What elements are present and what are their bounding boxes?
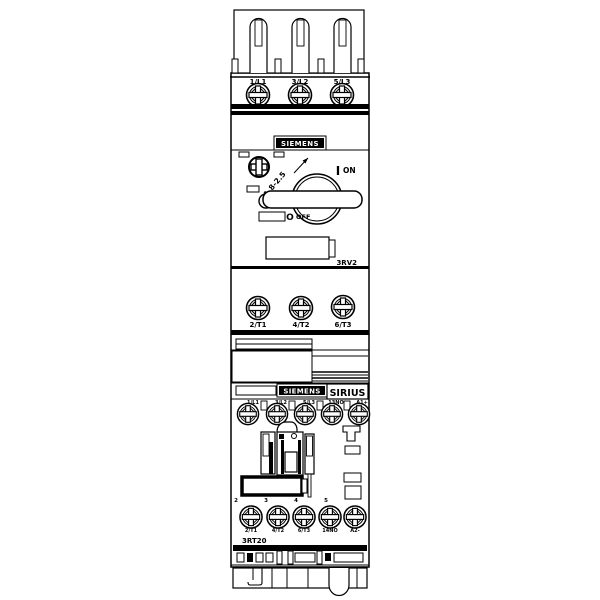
screw-terminal-icon: [348, 403, 369, 424]
screw-terminal-icon: [247, 84, 270, 107]
terminal-label: 4/T2: [272, 528, 285, 534]
breaker-line-terminals: 1/L1 3/L2 5/L3: [247, 78, 354, 107]
screw-terminal-icon: [331, 84, 354, 107]
on-label: ON: [343, 166, 356, 175]
off-label: OFF: [296, 213, 310, 221]
screw-terminal-icon: [266, 403, 287, 424]
separator-bar: [231, 104, 369, 109]
brand-text: SIEMENS: [283, 388, 320, 396]
adjustment-screw-icon: [249, 157, 269, 177]
series-text: SIRIUS: [330, 388, 366, 399]
screw-terminal-icon: [332, 296, 355, 319]
separator-bar: [233, 545, 367, 551]
separator-bar: [231, 266, 369, 269]
screw-terminal-icon: [293, 506, 315, 528]
screw-terminal-icon: [319, 506, 341, 528]
breaker-model-label: 3RV2: [336, 259, 357, 267]
terminal-label: 4/T2: [292, 321, 309, 329]
screw-terminal-icon: [290, 297, 313, 320]
terminal-label: 2/T1: [245, 528, 258, 534]
pole-number: 3: [264, 498, 268, 504]
screw-terminal-icon: [344, 506, 366, 528]
pole-number: 2: [234, 498, 238, 504]
brand-text: SIEMENS: [281, 140, 319, 148]
screw-terminal-icon: [294, 403, 315, 424]
terminal-label: A2-: [350, 528, 359, 534]
contactor-model-label: 3RT20: [242, 537, 267, 545]
screw-terminal-icon: [247, 297, 270, 320]
terminal-label: 6/T3: [298, 528, 311, 534]
terminal-label: 14NO: [322, 528, 337, 534]
pole-number: 4: [294, 498, 298, 504]
label-window: [242, 477, 302, 495]
busbar-prong-block: [230, 10, 370, 77]
breaker-brand-plate: SIEMENS: [274, 136, 326, 150]
motor-starter-diagram: 1/L1 3/L2 5/L3 SIEMENS: [0, 0, 600, 600]
separator-bar: [231, 111, 369, 115]
separator-bar: [231, 330, 369, 335]
technical-drawing-page: 1/L1 3/L2 5/L3 SIEMENS: [0, 0, 600, 600]
marking-field: [266, 237, 329, 259]
off-symbol: O: [286, 213, 294, 223]
on-symbol: I: [336, 164, 340, 178]
clamp-row: [237, 551, 363, 564]
breaker-load-terminals: 2/T1 4/T2 6/T3: [247, 296, 355, 330]
screw-terminal-icon: [237, 403, 258, 424]
terminal-label: 6/T3: [334, 321, 351, 329]
screw-terminal-icon: [240, 506, 262, 528]
screw-terminal-icon: [267, 506, 289, 528]
screw-terminal-icon: [289, 84, 312, 107]
terminal-label: 2/T1: [249, 321, 266, 329]
screw-terminal-icon: [321, 403, 342, 424]
handle-lever: [263, 191, 362, 208]
din-rail-clip: [329, 568, 349, 596]
mounting-base: [233, 568, 367, 596]
pole-number: 5: [324, 498, 328, 504]
